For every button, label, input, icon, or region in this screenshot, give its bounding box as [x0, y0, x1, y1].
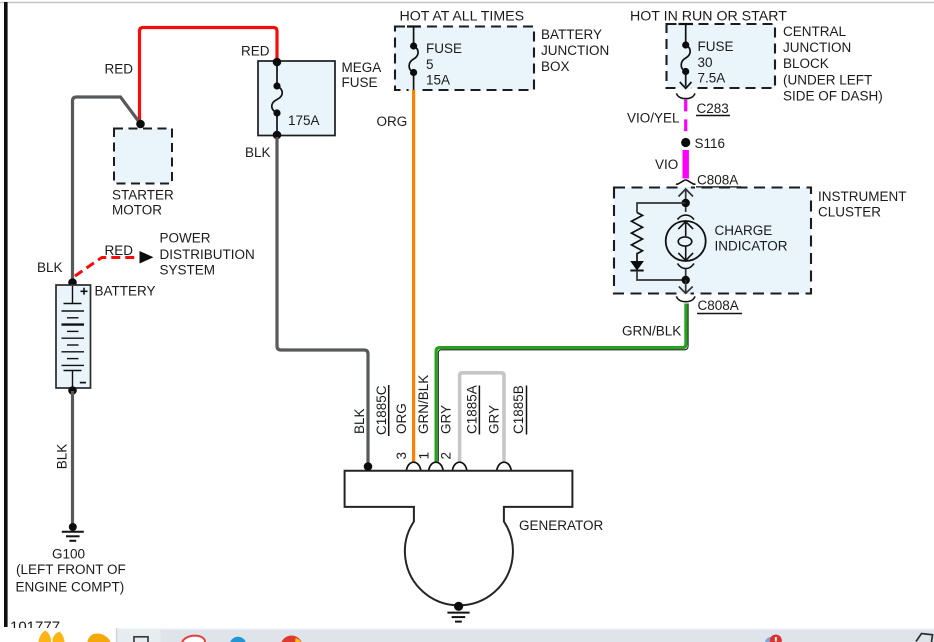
- svg-text:G100: G100: [52, 547, 85, 562]
- svg-text:5: 5: [426, 57, 434, 72]
- svg-text:C808A: C808A: [697, 173, 738, 188]
- svg-text:GRN/BLK: GRN/BLK: [622, 324, 681, 339]
- svg-text:ENGINE COMPT): ENGINE COMPT): [16, 580, 125, 595]
- svg-text:BLK: BLK: [352, 408, 367, 434]
- svg-text:CLUSTER: CLUSTER: [818, 205, 881, 220]
- svg-text:S116: S116: [695, 136, 726, 151]
- svg-text:MOTOR: MOTOR: [112, 203, 162, 218]
- svg-text:GRY: GRY: [487, 405, 502, 434]
- svg-text:BOX: BOX: [541, 59, 570, 74]
- svg-text:C1885B: C1885B: [511, 385, 526, 434]
- svg-text:7.5A: 7.5A: [698, 71, 726, 86]
- svg-text:VIO/YEL: VIO/YEL: [627, 111, 680, 126]
- svg-text:FUSE: FUSE: [698, 39, 734, 54]
- svg-text:3: 3: [394, 452, 409, 460]
- svg-text:BATTERY: BATTERY: [541, 27, 602, 42]
- svg-text:175A: 175A: [288, 113, 320, 128]
- svg-text:BLOCK: BLOCK: [783, 56, 829, 71]
- svg-text:C1885C: C1885C: [374, 385, 389, 435]
- svg-text:BLK: BLK: [245, 145, 271, 160]
- svg-text:RED: RED: [105, 62, 134, 77]
- svg-text:CHARGE: CHARGE: [715, 223, 773, 238]
- svg-text:HOT AT ALL TIMES: HOT AT ALL TIMES: [400, 9, 525, 25]
- svg-text:MEGA: MEGA: [342, 60, 382, 75]
- svg-text:DISTRIBUTION: DISTRIBUTION: [160, 247, 255, 262]
- svg-text:SIDE OF DASH): SIDE OF DASH): [783, 89, 883, 104]
- svg-text:RED: RED: [105, 243, 134, 258]
- svg-text:JUNCTION: JUNCTION: [541, 43, 609, 58]
- svg-text:BLK: BLK: [55, 444, 70, 470]
- svg-text:BLK: BLK: [37, 260, 63, 275]
- svg-text:STARTER: STARTER: [112, 188, 174, 203]
- svg-text:BATTERY: BATTERY: [95, 284, 156, 299]
- svg-text:HOT IN RUN OR START: HOT IN RUN OR START: [630, 9, 787, 25]
- svg-text:15A: 15A: [426, 73, 450, 88]
- svg-text:C283: C283: [697, 101, 729, 116]
- svg-text:GRY: GRY: [439, 405, 454, 434]
- svg-text:FUSE: FUSE: [426, 41, 462, 56]
- svg-text:RED: RED: [241, 44, 270, 59]
- svg-text:SYSTEM: SYSTEM: [160, 263, 216, 278]
- svg-text:INSTRUMENT: INSTRUMENT: [818, 189, 907, 204]
- svg-text:30: 30: [698, 55, 713, 70]
- svg-text:GRN/BLK: GRN/BLK: [416, 375, 431, 434]
- svg-text:C808A: C808A: [698, 298, 739, 313]
- svg-text:ORG: ORG: [394, 403, 409, 434]
- svg-text:ORG: ORG: [377, 114, 408, 129]
- svg-text:FUSE: FUSE: [342, 75, 378, 90]
- svg-text:INDICATOR: INDICATOR: [715, 239, 788, 254]
- svg-text:1: 1: [417, 452, 432, 460]
- svg-text:C1885A: C1885A: [464, 385, 479, 434]
- svg-text:JUNCTION: JUNCTION: [783, 40, 851, 55]
- svg-text:(UNDER LEFT: (UNDER LEFT: [783, 73, 872, 88]
- svg-text:CENTRAL: CENTRAL: [783, 24, 847, 39]
- svg-text:GENERATOR: GENERATOR: [519, 518, 604, 533]
- svg-text:VIO: VIO: [655, 157, 678, 172]
- svg-text:(LEFT FRONT OF: (LEFT FRONT OF: [16, 562, 126, 577]
- svg-text:POWER: POWER: [160, 231, 211, 246]
- svg-text:2: 2: [439, 452, 454, 460]
